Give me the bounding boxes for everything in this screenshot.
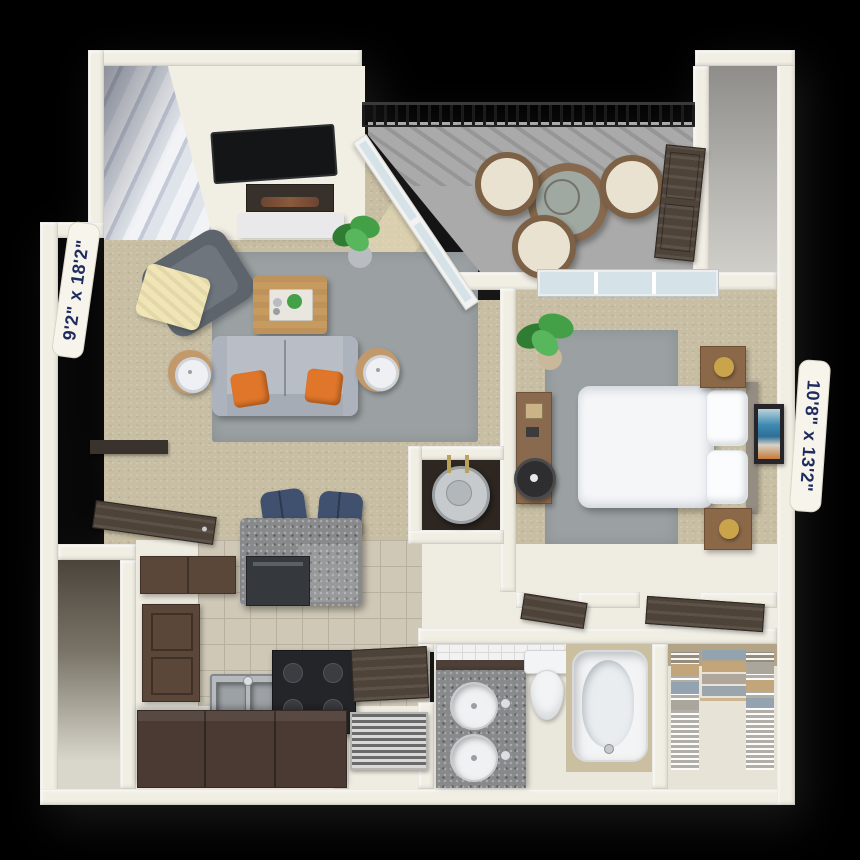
bed-pillow [706, 390, 748, 446]
chair-center [530, 474, 538, 482]
water-heater-top [446, 480, 472, 506]
sink-drain [471, 703, 477, 709]
bathroom-vanity [436, 670, 526, 788]
vanity-backsplash [436, 660, 526, 670]
staircase [104, 66, 214, 240]
sofa-armrest [343, 336, 358, 416]
door-panel-inset [151, 613, 193, 651]
wall-utility-right [120, 560, 136, 789]
folded-clothes [746, 680, 774, 692]
balcony-table-glass [544, 179, 580, 215]
balcony-railing [362, 102, 695, 127]
wall-bottom-exterior [40, 789, 795, 805]
water-heater-pipe [465, 455, 469, 473]
folded-clothes [746, 698, 774, 708]
wall-art [754, 404, 784, 464]
tray-dish [273, 298, 282, 307]
folded-clothes [702, 674, 746, 684]
folded-clothes [702, 662, 746, 672]
wall-art-canvas [758, 409, 780, 459]
accent-pillow [230, 369, 271, 408]
entry-door-frame [90, 440, 168, 454]
folded-clothes [671, 700, 699, 710]
lamp-finial [376, 368, 380, 372]
wall-water-heater-top [408, 446, 504, 460]
door-panel-line [660, 203, 695, 252]
tub-faucet [604, 744, 614, 754]
tv-screen [210, 124, 337, 185]
upper-cabinet [140, 556, 236, 594]
sofa-armrest [212, 336, 227, 416]
hanger-rod [700, 698, 748, 701]
folded-clothes [671, 682, 699, 694]
bedroom-dimension-text: 10'8" x 13'2" [796, 379, 825, 492]
table-lamp [363, 355, 399, 391]
bathtub [572, 650, 648, 762]
nightstand [700, 346, 746, 388]
wall-storage-top [695, 50, 795, 66]
wall-bathroom-right [652, 644, 668, 789]
toilet [524, 650, 568, 722]
side-table [168, 350, 212, 394]
nightstand [704, 508, 752, 550]
coffee-table [253, 276, 327, 334]
dishwasher [246, 556, 310, 606]
hvac-vent-panel [350, 712, 428, 770]
balcony-chair [475, 152, 539, 216]
toilet-bowl [530, 670, 564, 720]
vanity-faucet [500, 750, 511, 761]
wall-bedroom-bottom [578, 592, 640, 608]
bed [578, 382, 758, 514]
wall-block-left [88, 50, 104, 238]
burner [323, 663, 343, 683]
bed-duvet [578, 386, 714, 508]
bathroom-open-door [351, 646, 430, 702]
fireplace [246, 184, 334, 212]
water-heater-pipe [447, 455, 451, 473]
wall-left-exterior [40, 222, 58, 805]
fireplace-wall-block [104, 66, 365, 240]
wall-water-heater-bottom [408, 530, 504, 544]
closet-shelf-left [671, 652, 699, 770]
sink-faucet [243, 676, 253, 686]
folded-clothes [746, 662, 774, 674]
bathtub-basin [582, 660, 634, 748]
folded-clothes [702, 650, 746, 660]
fireplace-logs [261, 197, 319, 207]
wall-block-top [88, 50, 362, 66]
bathtub-surround [566, 644, 652, 772]
desk-item [526, 427, 539, 437]
table-lamp [175, 357, 211, 393]
lamp-finial [188, 370, 192, 374]
closet-shelf-back [702, 650, 746, 708]
stair-shadow [104, 66, 214, 240]
balcony-storage-floor [709, 66, 777, 272]
tray-dish [273, 308, 280, 315]
floorplan-canvas: 9'2" x 18'2" 10'8" x 13'2" [0, 0, 860, 860]
gold-lamp [719, 519, 739, 539]
sink-drain [471, 755, 477, 761]
door-panel-line [666, 152, 701, 201]
tabletop-plant [287, 294, 302, 309]
gold-lamp [714, 357, 734, 377]
living-room-plant [328, 214, 384, 270]
folded-clothes [671, 664, 699, 676]
dishwasher-handle [253, 562, 303, 566]
kitchen-base-counters [137, 710, 347, 788]
vanity-faucet [500, 698, 511, 709]
wall-utility-top [58, 544, 136, 560]
side-table [356, 348, 400, 392]
laundry-closet-floor [58, 560, 120, 789]
wall-bath-closet-top [418, 628, 777, 644]
bedroom-window [538, 270, 718, 296]
burner [283, 663, 303, 683]
bedroom-plant [514, 312, 578, 374]
vanity-sink [450, 734, 498, 782]
door-knob [202, 526, 208, 532]
sofa [212, 336, 358, 416]
vanity-sink [450, 682, 498, 730]
desk-item [525, 403, 543, 419]
water-heater [432, 466, 490, 524]
door-panel-inset [151, 657, 193, 695]
apartment-building [0, 0, 860, 860]
bed-pillow [706, 450, 748, 504]
closet-shelf-right [746, 652, 774, 770]
pantry-door [142, 604, 200, 702]
balcony-chair [600, 155, 664, 219]
sofa-cushion-seam [284, 340, 286, 396]
accent-pillow [304, 368, 344, 406]
desk-chair [514, 458, 556, 500]
folded-clothes [702, 686, 746, 696]
